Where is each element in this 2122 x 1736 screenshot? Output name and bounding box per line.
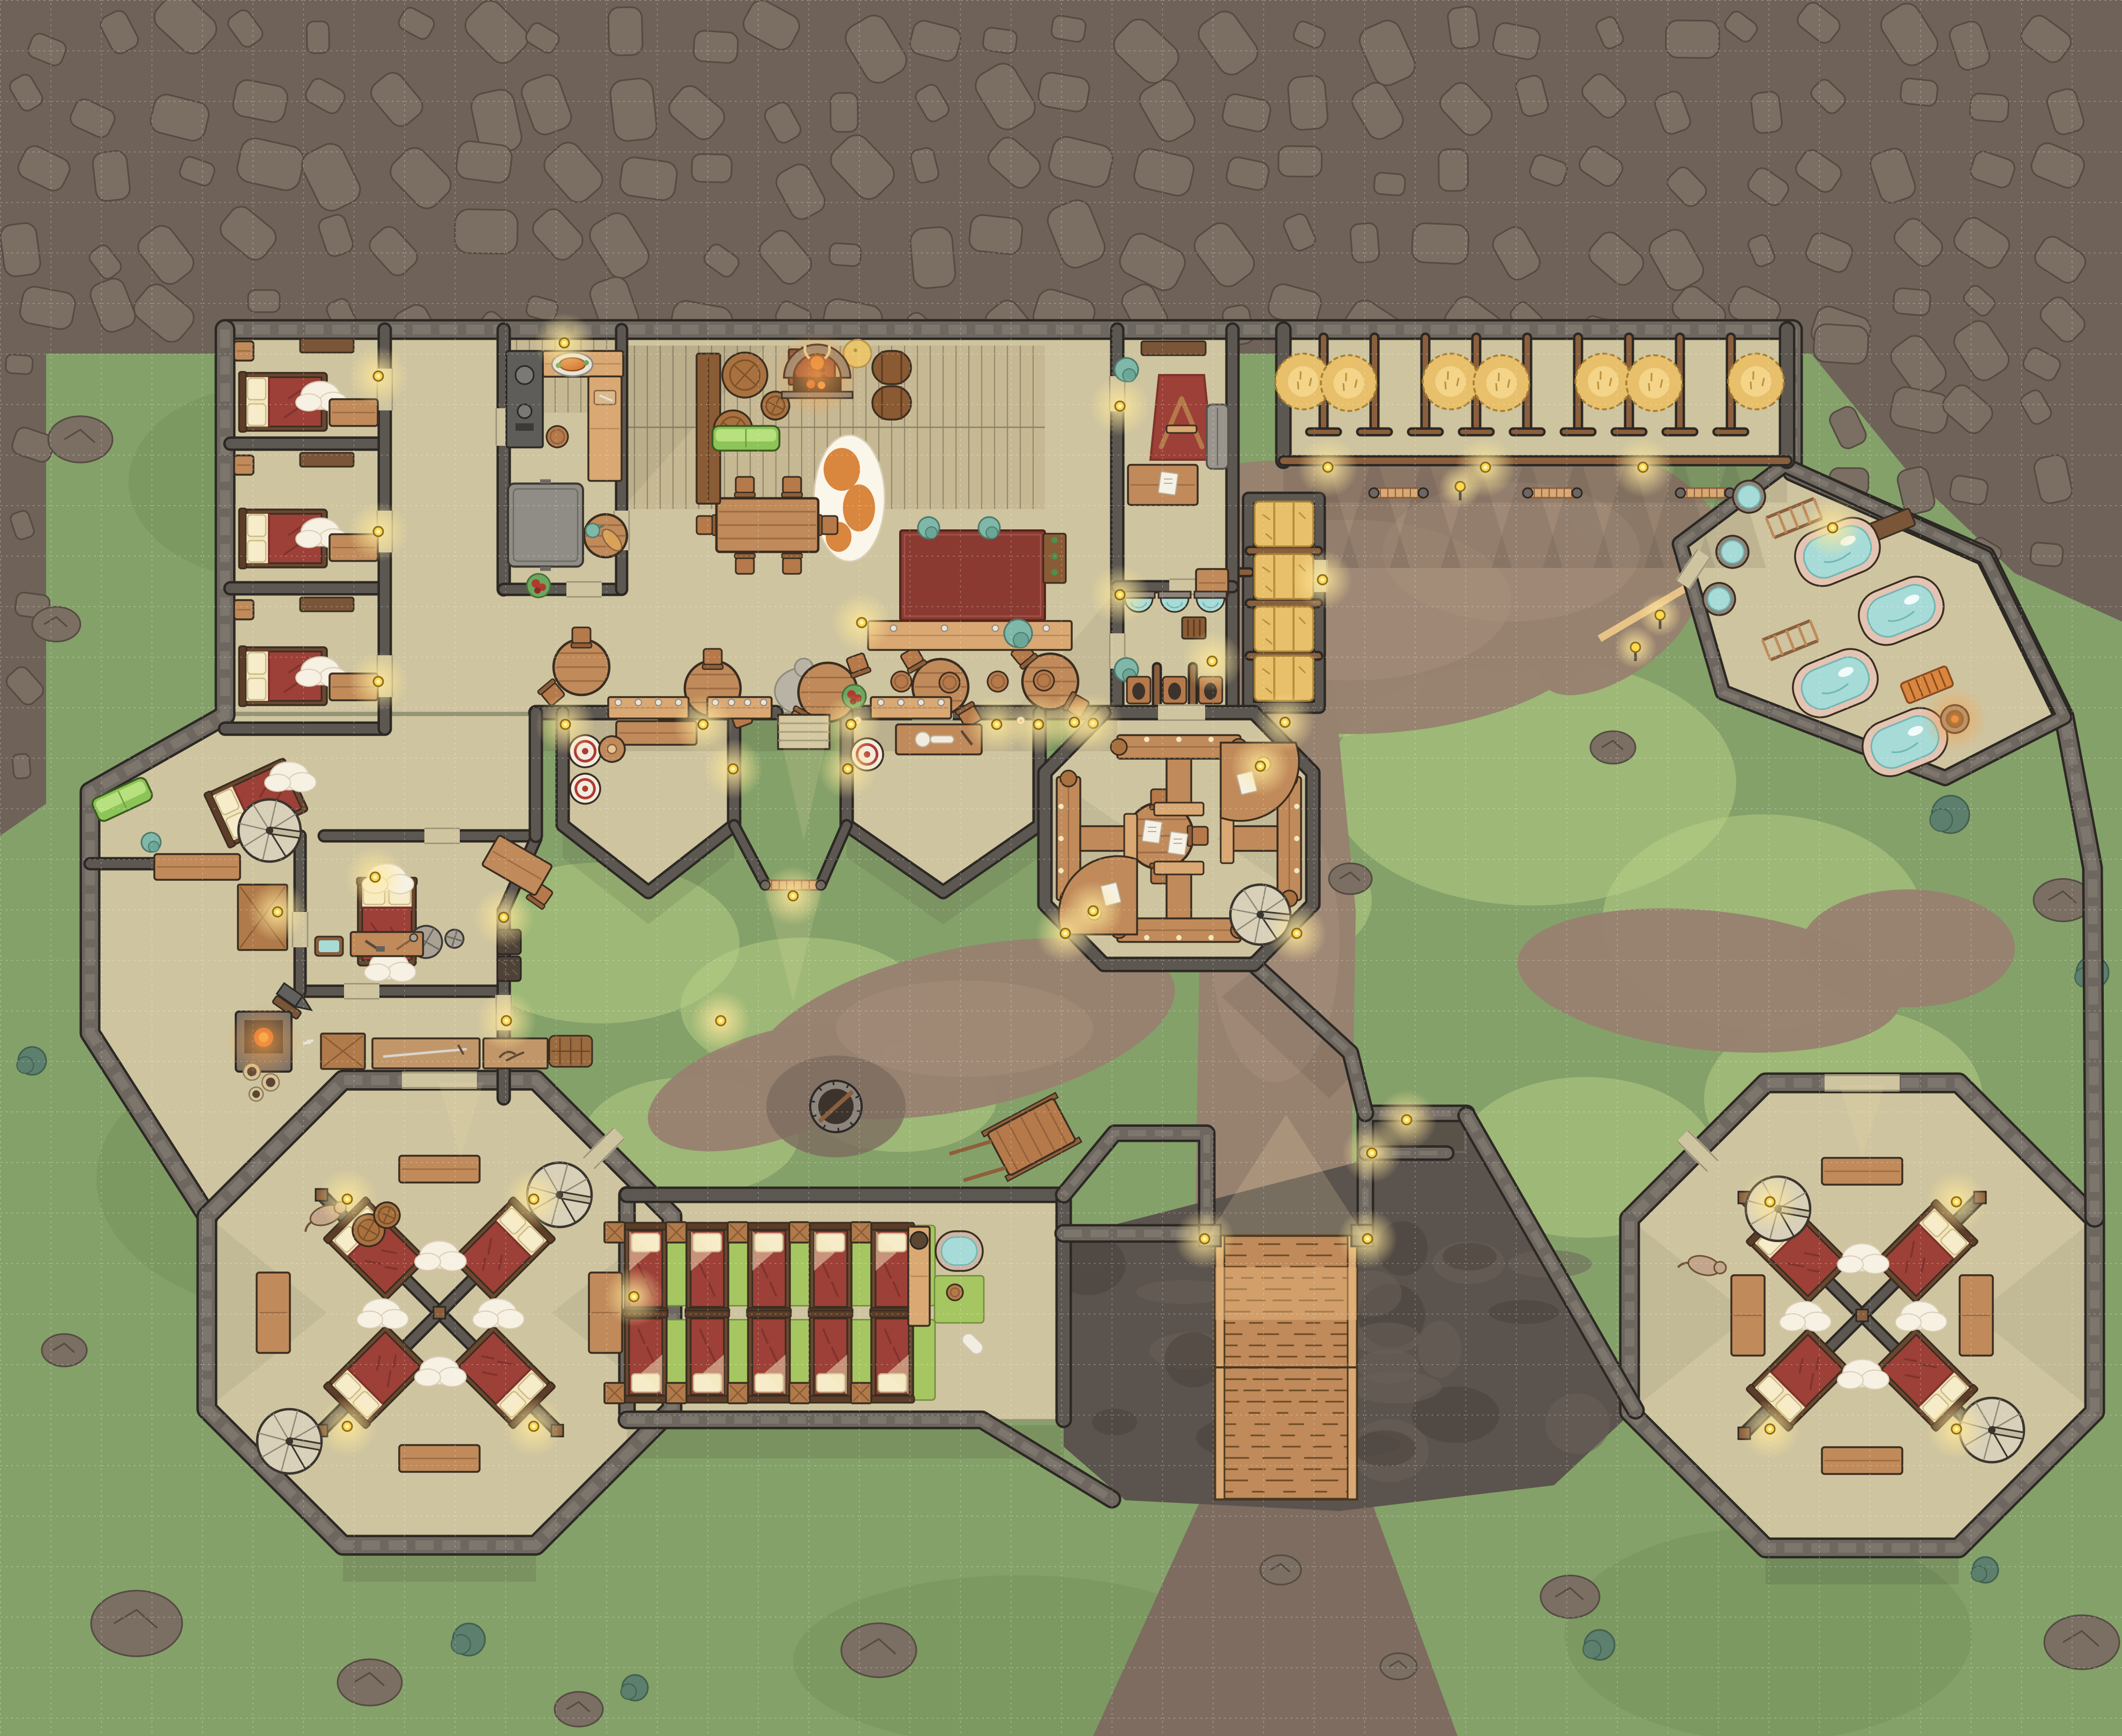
wall-lamp <box>1090 565 1150 625</box>
wall-lamp <box>1338 1209 1398 1269</box>
wall-lamp <box>1740 1172 1800 1232</box>
wall-lamp <box>832 593 892 653</box>
wall-lamp <box>691 991 751 1051</box>
fire-glow <box>226 1004 301 1079</box>
wall-lamp <box>348 346 408 406</box>
wall-lamp <box>1926 1172 1986 1232</box>
fire-glow <box>1923 687 1987 751</box>
fire-glow <box>774 332 860 418</box>
wall-lamp <box>604 1267 664 1327</box>
wall-lamp <box>1292 550 1353 610</box>
wall-lamp <box>317 1396 377 1456</box>
grid-overlay <box>0 0 2122 1736</box>
wall-lamp <box>1613 437 1673 497</box>
battle-map-canvas <box>0 0 2122 1736</box>
wall-lamp <box>317 1169 377 1229</box>
wall-lamp <box>1740 1399 1800 1459</box>
fortress-inn-battle-map <box>0 0 2122 1736</box>
wall-lamp <box>1008 694 1069 754</box>
wall-lamp <box>345 847 405 907</box>
wall-lamp <box>1090 376 1150 436</box>
wall-lamp <box>818 739 878 799</box>
wall-lamp <box>504 1396 564 1456</box>
wall-lamp <box>504 1169 564 1229</box>
wall-lamp <box>1175 1209 1235 1269</box>
wall-lamp <box>534 313 594 373</box>
wall-lamp <box>1298 437 1358 497</box>
wall-lamp <box>1182 631 1242 691</box>
wall-lamp <box>1455 437 1515 497</box>
wall-lamp <box>535 694 595 754</box>
grid-lines <box>0 0 2122 1736</box>
wall-lamp <box>1803 498 1863 558</box>
wall-lamp <box>248 882 308 942</box>
wall-lamp <box>763 866 823 926</box>
wall-lamp <box>1377 1090 1437 1150</box>
wall-lamp <box>1926 1399 1986 1459</box>
wall-lamp <box>1230 736 1290 796</box>
wall-lamp <box>348 502 408 562</box>
wall-lamp <box>703 739 763 799</box>
wall-lamp <box>476 991 536 1051</box>
wall-lamp <box>474 887 534 947</box>
wall-lamp <box>1063 881 1123 941</box>
wall-lamp <box>1267 903 1327 963</box>
wall-lamp <box>348 652 408 712</box>
